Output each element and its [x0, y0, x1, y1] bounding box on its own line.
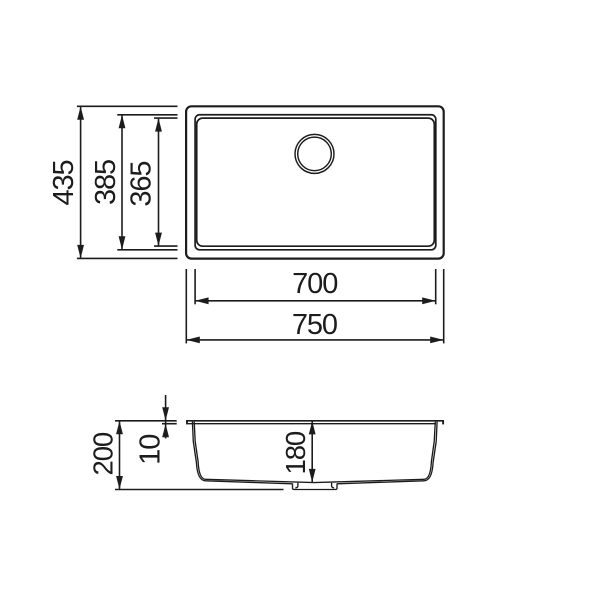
svg-text:365: 365: [126, 162, 158, 207]
svg-text:385: 385: [90, 160, 122, 205]
svg-text:700: 700: [292, 268, 337, 300]
svg-text:10: 10: [135, 435, 167, 465]
svg-text:200: 200: [87, 432, 118, 475]
svg-text:435: 435: [48, 160, 80, 205]
svg-text:750: 750: [292, 309, 337, 341]
svg-text:180: 180: [280, 431, 311, 474]
